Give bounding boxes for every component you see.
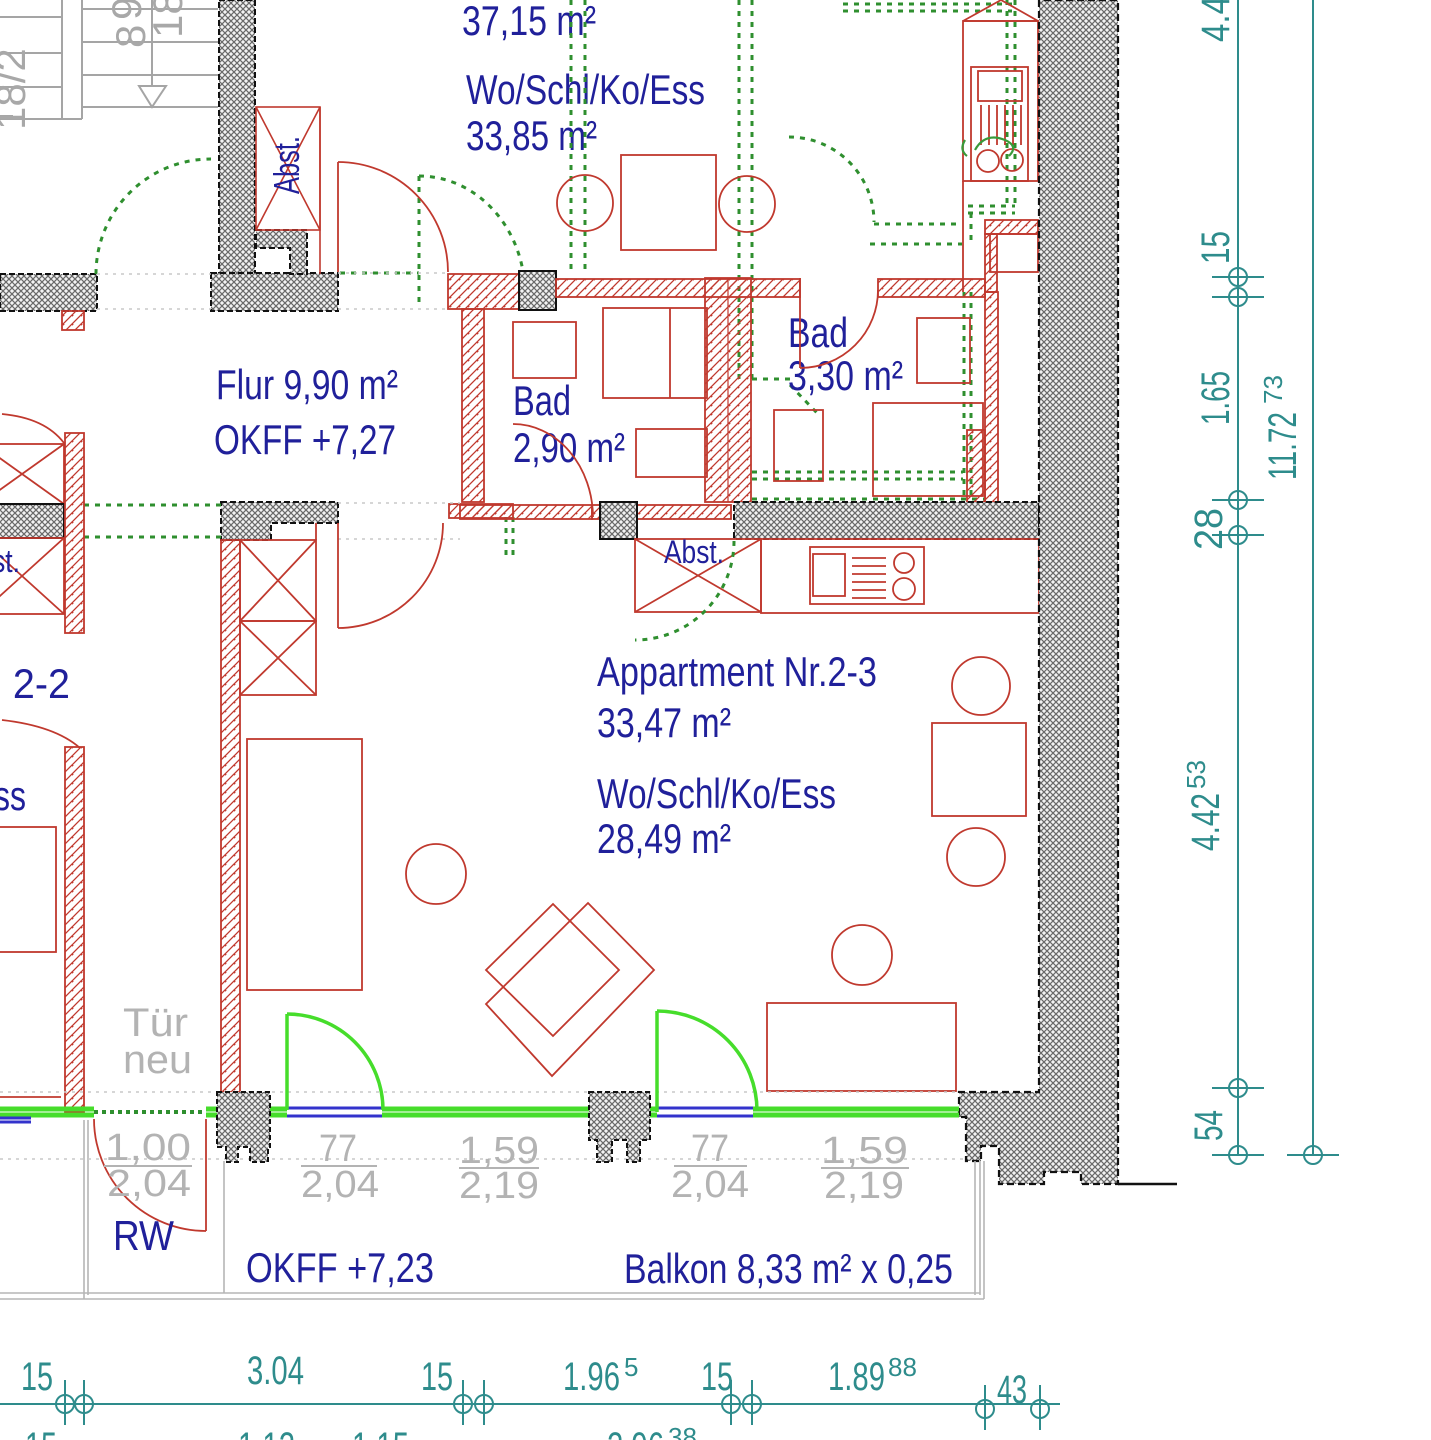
svg-text:54: 54: [1187, 1110, 1231, 1141]
svg-text:2,04: 2,04: [107, 1163, 191, 1205]
svg-text:3.04: 3.04: [247, 1349, 304, 1393]
svg-text:18: 18: [144, 0, 191, 38]
svg-text:33,47 m²: 33,47 m²: [597, 699, 731, 746]
svg-text:2,90 m²: 2,90 m²: [513, 424, 625, 471]
svg-text:33,85 m²: 33,85 m²: [466, 112, 597, 159]
svg-text:38: 38: [668, 1422, 697, 1440]
svg-text:88: 88: [888, 1352, 917, 1382]
svg-text:2,19: 2,19: [824, 1165, 904, 1207]
svg-text:28: 28: [1187, 508, 1231, 550]
svg-text:Wo/Schl/Ko/Ess: Wo/Schl/Ko/Ess: [597, 770, 836, 817]
svg-text:1.15: 1.15: [352, 1425, 409, 1440]
svg-text:1.65: 1.65: [1194, 371, 1238, 425]
svg-text:RW: RW: [113, 1212, 174, 1259]
svg-text:OKFF +7,23: OKFF +7,23: [246, 1244, 434, 1291]
svg-text:OKFF +7,27: OKFF +7,27: [214, 416, 396, 463]
svg-text:53: 53: [1181, 760, 1211, 789]
svg-text:1.12: 1.12: [238, 1425, 295, 1440]
svg-text:2.96: 2.96: [607, 1425, 664, 1440]
svg-text:2,04: 2,04: [671, 1164, 749, 1206]
svg-text:15: 15: [25, 1425, 57, 1440]
svg-text:Abst.: Abst.: [266, 136, 307, 194]
svg-text:43: 43: [997, 1368, 1027, 1412]
svg-text:9: 9: [103, 0, 150, 20]
svg-text:37,15 m²: 37,15 m²: [462, 0, 596, 44]
svg-text:4.4: 4.4: [1194, 0, 1238, 42]
svg-text:Balkon 8,33 m² x 0,25: Balkon 8,33 m² x 0,25: [624, 1245, 953, 1292]
svg-text:r. 2-2: r. 2-2: [0, 660, 70, 707]
svg-text:15: 15: [421, 1355, 453, 1399]
svg-text:2,19: 2,19: [459, 1165, 539, 1207]
svg-text:2,04: 2,04: [301, 1164, 379, 1206]
svg-text:4.42: 4.42: [1184, 793, 1228, 851]
svg-text:73: 73: [1258, 375, 1288, 404]
svg-text:18/2: 18/2: [0, 48, 34, 130]
svg-text:1.96: 1.96: [563, 1355, 620, 1399]
svg-text:Appartment Nr.2-3: Appartment Nr.2-3: [597, 648, 877, 695]
svg-text:3,30 m²: 3,30 m²: [788, 352, 903, 399]
svg-text:neu: neu: [123, 1038, 192, 1082]
svg-text:15: 15: [701, 1355, 733, 1399]
svg-text:1.89: 1.89: [828, 1355, 885, 1399]
svg-text:11.72: 11.72: [1261, 412, 1305, 480]
svg-text:5: 5: [624, 1352, 638, 1382]
svg-text:15: 15: [1194, 231, 1238, 264]
svg-text:Abst.: Abst.: [664, 534, 724, 570]
svg-text:ss: ss: [0, 772, 26, 819]
svg-text:Flur 9,90 m²: Flur 9,90 m²: [216, 361, 398, 408]
svg-text:15: 15: [21, 1355, 53, 1399]
svg-text:Bad: Bad: [513, 377, 571, 424]
svg-text:st.: st.: [0, 543, 20, 579]
svg-text:28,49 m²: 28,49 m²: [597, 815, 731, 862]
svg-text:Bad: Bad: [788, 309, 848, 356]
